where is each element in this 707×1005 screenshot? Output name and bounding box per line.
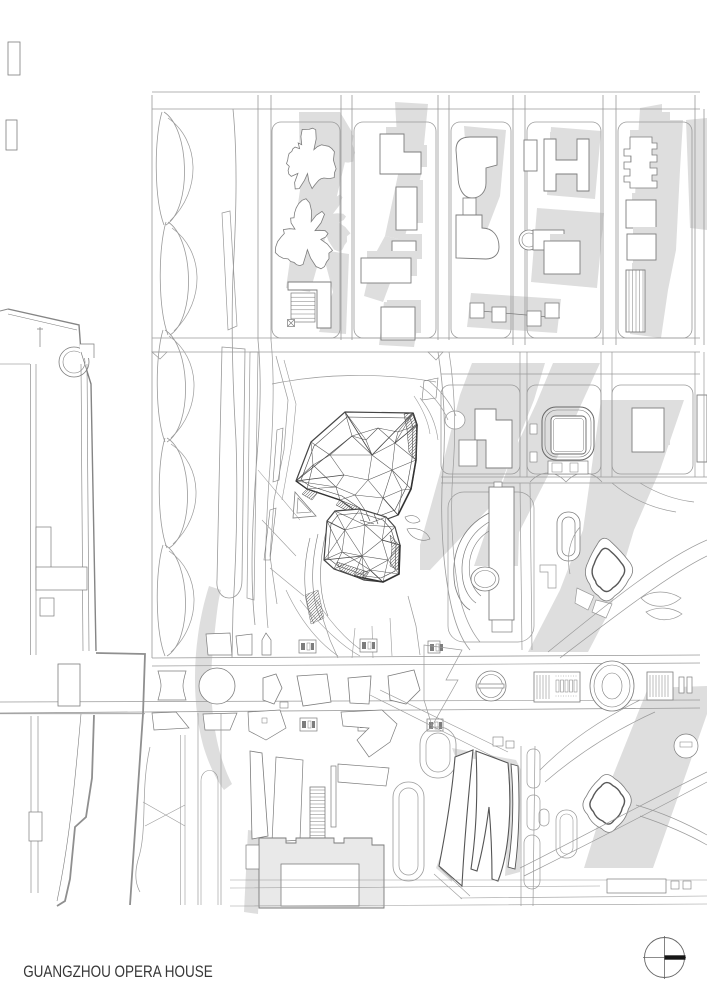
svg-text:GUANGZHOU OPERA HOUSE: GUANGZHOU OPERA HOUSE [23,962,213,981]
